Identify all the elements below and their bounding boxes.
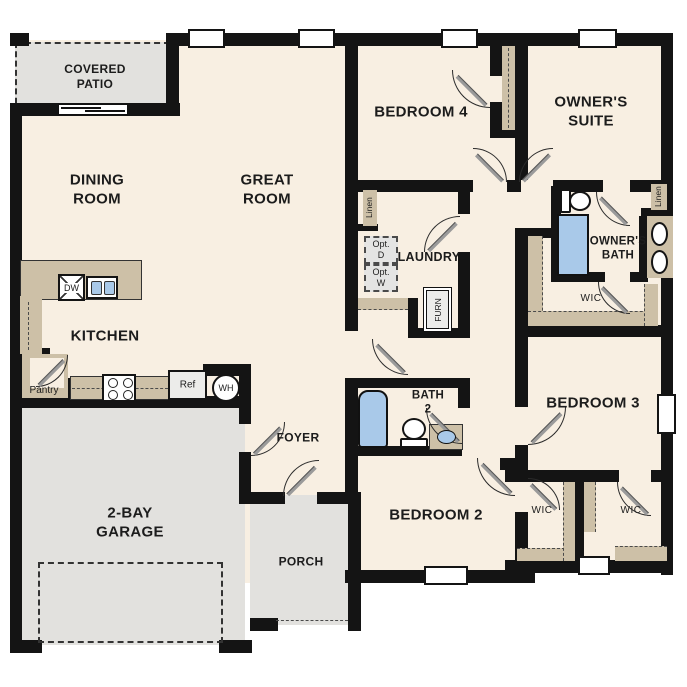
room-label-laundry: LAUNDRY [398,250,461,266]
wall-segment [219,640,252,653]
room-label-wic-right: WIC [621,505,642,518]
room-label-porch: PORCH [279,555,324,570]
wall-segment [575,482,584,562]
burner [108,390,118,400]
sliding-door [58,104,128,115]
water-heater-icon: WH [212,374,240,402]
sink-basin [91,281,102,295]
kitchen-sink-icon [86,276,118,299]
room-label-owners-suite: OWNER'S SUITE [554,93,627,131]
toilet-icon [569,191,591,211]
owners-wic-shelf-right [644,284,658,326]
optional-dryer-box: Opt. D [364,236,398,264]
coat-closet-shelf [358,298,408,310]
wall-segment [661,33,673,575]
wall-segment [10,107,22,653]
sink-basin [104,281,115,295]
bath2-sink-icon [437,430,456,444]
dishwasher-icon: DW [58,274,85,301]
floor-plan: DW Ref WH FURN Opt. D Opt. W COVERED PAT… [0,0,687,687]
wic2-shelf-bottom [517,548,565,561]
window [657,394,676,434]
wic3-shelf-left [584,482,596,532]
bathtub-icon [358,390,388,448]
wall-segment [345,378,358,494]
optional-washer-box: Opt. W [364,264,398,292]
vanity-sink-icon [651,222,668,246]
owners-wic-shelf-bottom [528,311,658,326]
burner [123,390,133,400]
wic3-shelf-bottom [615,546,667,561]
water-heater-label: WH [219,383,234,393]
dishwasher-label: DW [63,283,80,293]
wall-segment [651,470,673,482]
counter-dash-line [28,302,29,350]
wall-segment [458,378,470,408]
optional-dryer-label: Opt. D [372,239,389,261]
room-label-wic-left: WIC [532,505,553,518]
toilet-icon [400,438,428,448]
room-label-pantry: Pantry [30,385,59,398]
room-label-kitchen: KITCHEN [71,328,140,347]
room-label-covered-patio: COVERED PATIO [64,62,125,92]
vanity-sink-icon [651,250,668,274]
wall-segment [345,46,358,182]
window [578,556,610,575]
stove-icon [102,374,136,402]
furnace-icon: FURN [423,287,452,332]
room-label-dining: DINING ROOM [70,171,124,209]
room-label-bedroom3: BEDROOM 3 [546,395,640,414]
room-label-foyer: FOYER [277,431,320,446]
wall-segment [345,186,358,331]
garage-door-outline [38,562,223,643]
window [441,29,478,48]
refrigerator-icon: Ref [168,370,207,400]
shower-icon [557,214,589,276]
linen-label-owners: Linen [653,185,665,209]
optional-washer-label: Opt. W [372,267,389,289]
wall-segment [250,618,278,631]
kitchen-wall-counter [20,296,42,354]
wall-segment [515,228,528,325]
room-label-bath2: BATH 2 [412,389,444,418]
furnace-label: FURN [433,298,443,322]
window [298,29,335,48]
wall-segment [458,186,470,214]
wall-segment [345,378,468,388]
window [578,29,617,48]
wall-segment [348,492,361,631]
toilet-icon [402,418,426,440]
burner [123,378,133,388]
porch-edge-line [276,620,348,621]
room-label-wic-hall: WIC [581,293,602,306]
linen-label-hall: Linen [364,191,376,225]
room-label-bedroom2: BEDROOM 2 [389,507,483,526]
wic2-shelf-right [563,482,575,561]
wall-segment [515,337,528,407]
wall-segment [10,33,29,46]
wall-segment [239,492,285,504]
window [188,29,225,48]
refrigerator-label: Ref [180,380,196,391]
room-label-great: GREAT ROOM [241,171,294,209]
room-label-owners-bath: OWNER'S BATH [590,235,647,264]
room-label-bedroom4: BEDROOM 4 [374,104,468,123]
wall-segment [490,46,502,76]
wall-segment [515,445,528,482]
window [424,566,468,585]
room-label-garage: 2-BAY GARAGE [96,504,164,542]
wall-segment [239,364,251,424]
wall-segment [515,325,673,337]
closet-dash-line [508,48,509,128]
burner [108,378,118,388]
